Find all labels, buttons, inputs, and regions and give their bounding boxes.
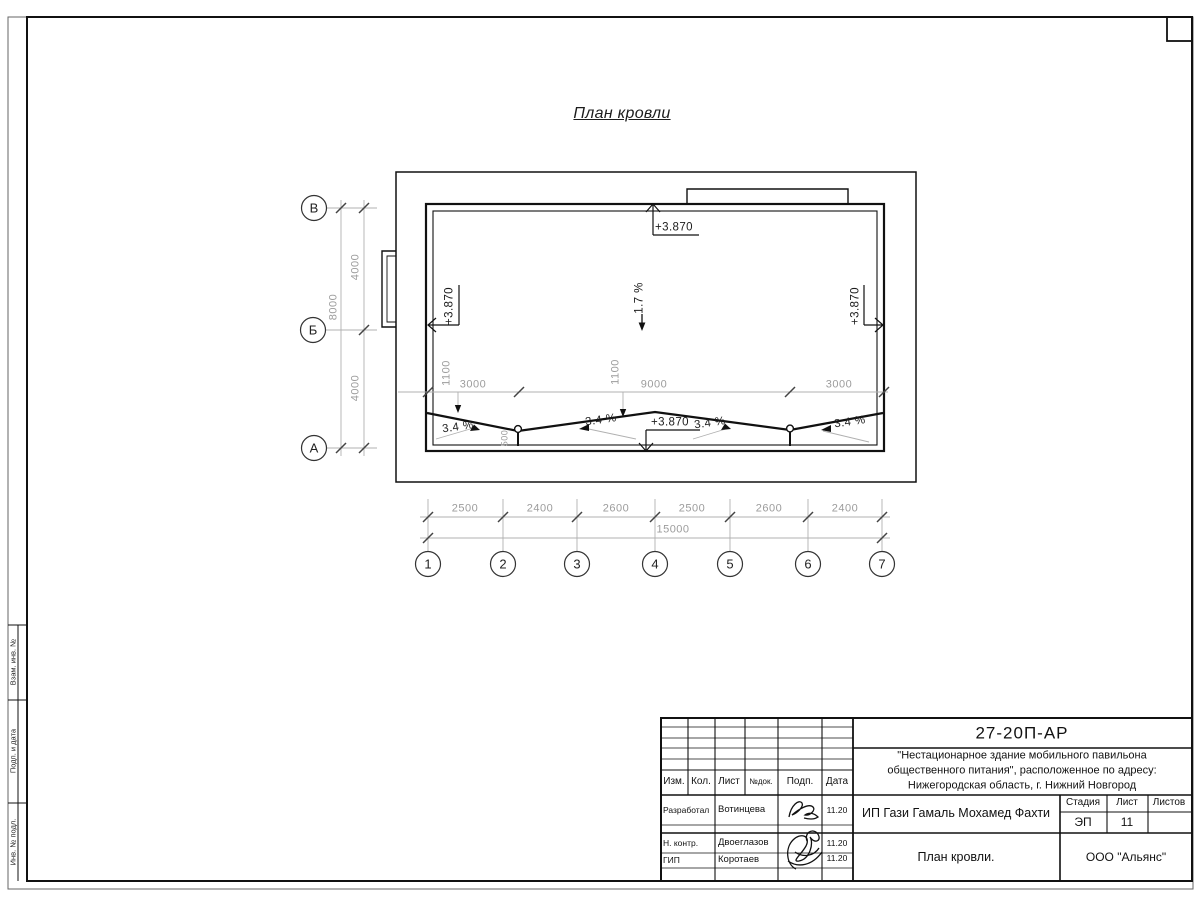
axis-col-label: 2	[499, 558, 506, 571]
tb-name: Вотинцева	[718, 805, 765, 815]
tb-role: Разработал	[663, 806, 709, 815]
elevation-label: +3.870	[850, 287, 862, 325]
frame-side-label: Взам. инв. №	[9, 639, 17, 685]
dim-label: 4000	[351, 254, 362, 280]
roof-drain-icon	[787, 425, 794, 432]
dim-label: 500	[501, 430, 510, 447]
company-name: ООО "Альянс"	[1086, 851, 1166, 863]
doc-number: 27-20П-АР	[975, 725, 1068, 742]
tb-col-header: Кол.	[691, 777, 711, 787]
dim-total-label: 15000	[656, 525, 689, 536]
project-name-line: Нижегородская область, г. Нижний Новгоро…	[908, 781, 1136, 792]
tb-date: 11.20	[827, 854, 848, 863]
elevation-label: +3.870	[444, 287, 456, 325]
dim-total-label: 8000	[329, 294, 340, 320]
dim-label: 4000	[351, 375, 362, 401]
tb-date: 11.20	[827, 806, 848, 815]
elevation-label: +3.870	[655, 222, 693, 234]
axis-col-label: 7	[878, 558, 885, 571]
dim-label: 2600	[603, 504, 629, 515]
tb-name: Двоеглазов	[718, 838, 769, 848]
dim-label: 1100	[611, 359, 622, 385]
axis-row-label: А	[310, 442, 319, 455]
tb-date: 11.20	[827, 839, 848, 848]
axis-row-label: Б	[309, 324, 318, 337]
tb-col-header: Подп.	[787, 777, 814, 787]
drawing-title: План кровли.	[917, 851, 994, 864]
project-name-line: общественного питания", расположенное по…	[887, 766, 1156, 777]
tb-name: Коротаев	[718, 855, 759, 865]
dim-label: 2600	[756, 504, 782, 515]
tb-role: Н. контр.	[663, 839, 698, 848]
tb-col-header: Лист	[718, 777, 740, 787]
wall-ledge-left	[382, 251, 396, 327]
slope-label: 1.7 %	[634, 282, 646, 313]
dimension-lines	[326, 200, 890, 551]
roof-drain-icon	[515, 426, 522, 433]
frame-side-label: Инв. № подл.	[9, 819, 17, 866]
axis-col-label: 5	[726, 558, 733, 571]
stage-header: Стадия	[1066, 798, 1100, 808]
sheet-value: 11	[1121, 816, 1133, 828]
building-outline	[382, 172, 916, 482]
roof-hatch-top	[687, 189, 848, 205]
dim-label: 9000	[641, 380, 667, 391]
dim-label: 2500	[679, 504, 705, 515]
tb-col-header: Дата	[826, 777, 848, 787]
tb-col-header: Изм.	[663, 777, 684, 787]
sheet-header: Лист	[1116, 798, 1138, 808]
dim-label: 2400	[832, 504, 858, 515]
dim-label: 2500	[452, 504, 478, 515]
client-name: ИП Гази Гамаль Мохамед Фахти	[862, 807, 1050, 820]
dim-label: 3000	[460, 380, 486, 391]
tb-col-header: №док.	[749, 778, 772, 786]
frame-side-label: Подп. и дата	[9, 729, 17, 773]
page-title: План кровли	[573, 106, 670, 122]
sheets-header: Листов	[1153, 798, 1186, 808]
signature-marks	[788, 802, 822, 869]
tb-role: ГИП	[663, 856, 680, 865]
elevation-marks	[428, 204, 883, 451]
dim-label: 3000	[826, 380, 852, 391]
axis-col-label: 3	[573, 558, 580, 571]
axis-col-label: 4	[651, 558, 658, 571]
dim-label: 2400	[527, 504, 553, 515]
drawing-sheet: План кровли В Б А 1 2 3 4 5 6 7 2500 240…	[0, 0, 1200, 900]
dim-label: 1100	[442, 360, 453, 386]
axis-col-label: 6	[804, 558, 811, 571]
axis-col-label: 1	[424, 558, 431, 571]
stage-value: ЭП	[1074, 816, 1091, 828]
project-name-line: "Нестационарное здание мобильного павиль…	[897, 751, 1146, 762]
axis-row-label: В	[310, 202, 319, 215]
elevation-label: +3.870	[651, 417, 689, 429]
